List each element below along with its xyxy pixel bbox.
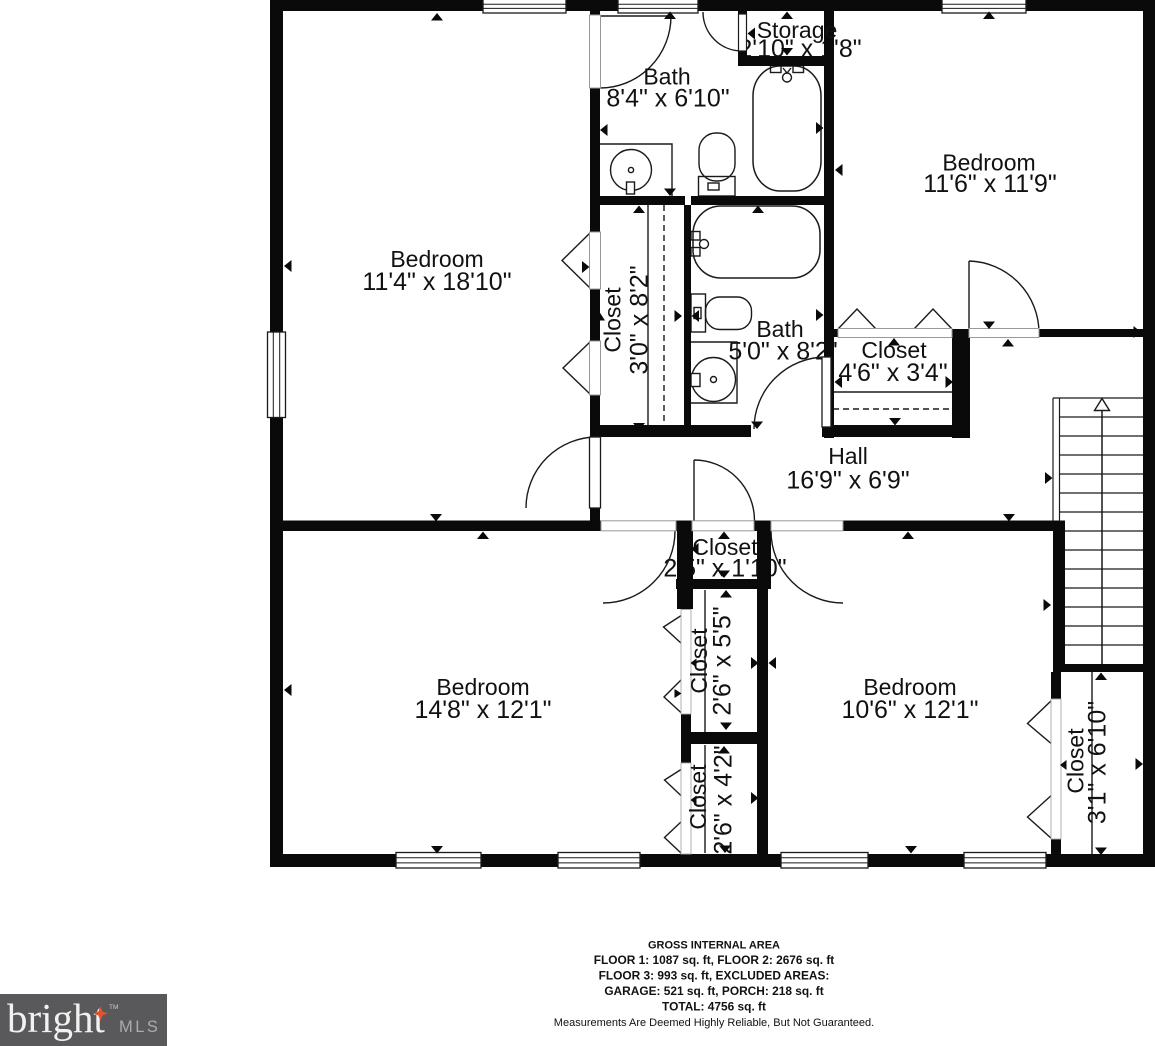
svg-text:14'8" x 12'1": 14'8" x 12'1" xyxy=(414,696,551,724)
svg-text:Measurements Are Deemed Highly: Measurements Are Deemed Highly Reliable,… xyxy=(554,1017,874,1029)
svg-text:TOTAL: 4756 sq. ft: TOTAL: 4756 sq. ft xyxy=(662,1000,766,1014)
svg-text:FLOOR 3: 993 sq. ft, EXCLUDED: FLOOR 3: 993 sq. ft, EXCLUDED AREAS: xyxy=(599,969,830,983)
svg-text:2'6" x 5'5": 2'6" x 5'5" xyxy=(709,606,737,715)
svg-text:3'1" x 6'10": 3'1" x 6'10" xyxy=(1084,701,1112,824)
svg-text:10'6" x 12'1": 10'6" x 12'1" xyxy=(841,696,978,724)
svg-text:Closet: Closet xyxy=(685,764,711,830)
svg-text:4'6" x 3'4": 4'6" x 3'4" xyxy=(838,359,947,387)
svg-text:Hall: Hall xyxy=(828,443,868,469)
svg-text:11'6" x 11'9": 11'6" x 11'9" xyxy=(923,170,1056,198)
svg-text:16'9" x 6'9": 16'9" x 6'9" xyxy=(786,467,909,495)
svg-text:FLOOR 1: 1087 sq. ft, FLOOR 2:: FLOOR 1: 1087 sq. ft, FLOOR 2: 2676 sq. … xyxy=(594,953,835,967)
svg-text:TM: TM xyxy=(109,1004,118,1011)
svg-text:8'4" x 6'10": 8'4" x 6'10" xyxy=(606,85,729,113)
svg-text:Bath: Bath xyxy=(756,316,803,342)
svg-text:2'6" x 4'2": 2'6" x 4'2" xyxy=(710,745,738,854)
svg-text:3'0" x 8'2": 3'0" x 8'2" xyxy=(626,265,654,374)
svg-text:MLS: MLS xyxy=(119,1018,160,1036)
svg-text:11'4" x 18'10": 11'4" x 18'10" xyxy=(362,268,511,296)
svg-text:GARAGE: 521 sq. ft, PORCH: 218: GARAGE: 521 sq. ft, PORCH: 218 sq. ft xyxy=(604,984,823,998)
svg-text:bright: bright xyxy=(7,995,106,1041)
svg-text:Storage: Storage xyxy=(757,17,838,43)
svg-text:GROSS INTERNAL AREA: GROSS INTERNAL AREA xyxy=(648,940,780,952)
